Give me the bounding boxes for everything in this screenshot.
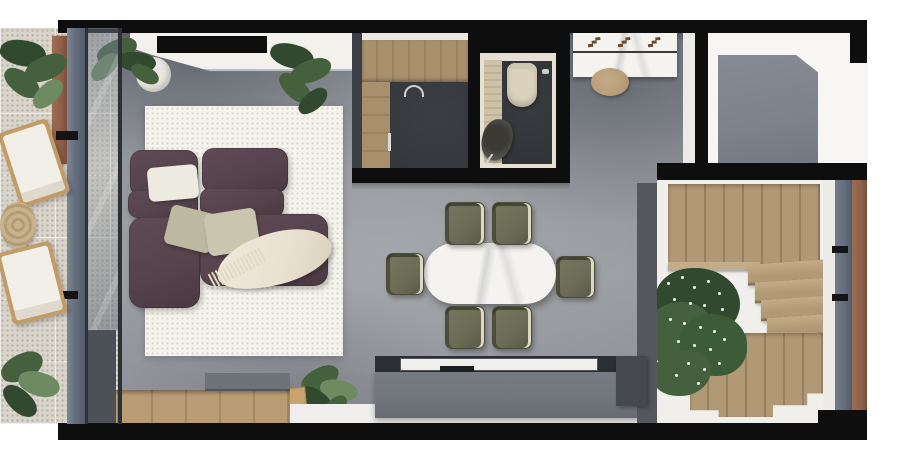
kitchen-bath-bottom-wall <box>352 168 570 183</box>
white-pillow <box>147 164 200 202</box>
left-door-frame <box>67 28 85 424</box>
porch-bottom-wall <box>657 163 867 180</box>
entry-wall-ledge <box>683 33 695 163</box>
dining-table <box>424 243 556 304</box>
kitchen-floor <box>390 82 468 168</box>
bathroom-interior <box>480 53 556 168</box>
tv-console-body <box>375 372 643 418</box>
entry-wood-stool <box>591 68 629 96</box>
woven-pouf <box>0 202 36 248</box>
console-dark-line <box>573 51 677 53</box>
right-outer-wall-stub <box>850 33 867 63</box>
left-door-glass-streak <box>85 28 122 330</box>
kitchen-left-wall-strip <box>352 33 362 168</box>
toilet <box>507 63 537 107</box>
dining-chair-right <box>556 256 595 298</box>
right-door-copper-panel <box>852 178 867 412</box>
stair-zone <box>657 180 847 423</box>
stair-plant <box>645 262 765 397</box>
flush-button <box>542 69 549 74</box>
stair-glyph-2 <box>618 44 623 48</box>
dining-chair-bottom-2 <box>492 306 532 349</box>
dining-chair-top-1 <box>445 202 485 245</box>
porch-concrete-patch <box>718 55 818 163</box>
dining-chair-bottom-1 <box>445 306 485 349</box>
sofa-back-right <box>202 148 288 193</box>
right-door-handle-1 <box>832 246 848 253</box>
kitchen-wall-ledge <box>362 33 468 40</box>
dining-chair-top-2 <box>492 202 532 245</box>
kitchen-bathroom-block <box>352 33 570 183</box>
kitchen-block-shadow <box>352 183 570 190</box>
tv-screen-inset <box>400 358 598 371</box>
floor-plan-canvas <box>0 0 920 460</box>
stair-glyph-3 <box>648 44 653 48</box>
stair-upper-flight <box>668 184 820 264</box>
bottom-outer-wall <box>58 423 848 440</box>
bathroom-right-wall <box>556 33 570 168</box>
stair-glyph-1 <box>588 44 593 48</box>
deck-step <box>205 373 290 391</box>
kitchen-counter-left <box>362 82 390 168</box>
left-door-track <box>88 330 116 423</box>
right-door-handle-2 <box>832 294 848 301</box>
kitchen-cabinet-handle <box>388 133 391 151</box>
top-outer-wall <box>58 20 867 33</box>
kitchen-bath-divider-wall <box>468 33 480 168</box>
entry-marble-console <box>573 33 677 77</box>
left-door-glass-edge-b <box>118 28 122 424</box>
left-door-handle-1 <box>56 131 78 140</box>
console-black-inset <box>157 36 267 53</box>
charcoal-planter-box <box>616 356 647 406</box>
entry-right-wall <box>695 20 708 180</box>
white-flowers <box>663 274 666 277</box>
bathroom-top-wall <box>480 33 556 53</box>
dining-chair-left <box>386 253 424 295</box>
kitchen-counter-top <box>362 40 468 82</box>
bottom-right-wall-block <box>818 410 867 440</box>
